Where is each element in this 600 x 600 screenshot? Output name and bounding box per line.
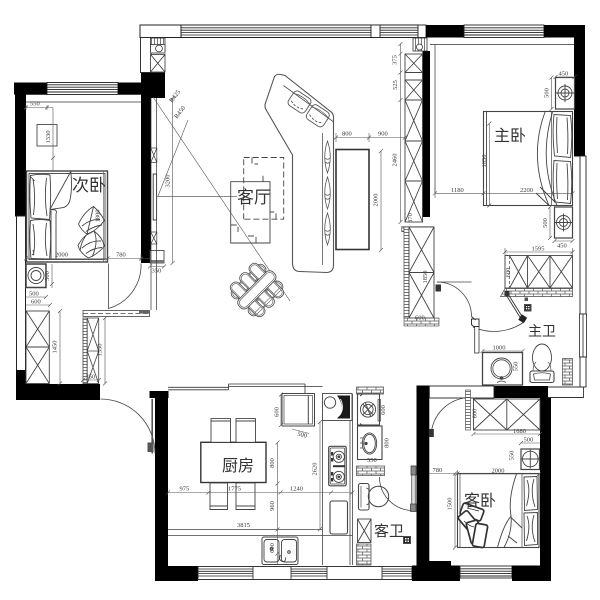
svg-text:780: 780 [433,467,443,474]
svg-text:客厅: 客厅 [237,188,271,207]
svg-text:3200: 3200 [165,175,172,188]
svg-text:厨房: 厨房 [222,457,254,475]
svg-text:2000: 2000 [373,194,380,207]
svg-text:600: 600 [31,299,41,306]
svg-text:960: 960 [269,501,276,511]
svg-text:550: 550 [513,362,520,372]
svg-text:450: 450 [559,71,569,78]
svg-text:500: 500 [542,218,549,228]
svg-text:1850: 1850 [422,271,429,284]
svg-text:500: 500 [44,271,51,281]
svg-text:1180: 1180 [451,187,464,194]
svg-text:370: 370 [407,213,414,223]
svg-text:1350: 1350 [97,344,104,357]
svg-text:600: 600 [269,543,276,553]
svg-text:800: 800 [384,438,391,448]
svg-text:3815: 3815 [237,522,250,529]
svg-text:1775: 1775 [228,486,241,493]
svg-text:1680: 1680 [513,428,526,435]
svg-text:1800: 1800 [95,210,102,223]
svg-text:375: 375 [392,55,399,65]
svg-text:1595: 1595 [532,246,545,253]
svg-text:450: 450 [557,243,567,250]
svg-text:350: 350 [86,374,96,381]
svg-text:500: 500 [29,291,39,298]
svg-text:客卫: 客卫 [374,523,404,540]
svg-text:525: 525 [392,80,399,90]
svg-text:600: 600 [415,315,425,322]
svg-text:1500: 1500 [447,498,454,511]
svg-text:500: 500 [544,88,551,98]
svg-text:800: 800 [269,458,276,468]
svg-text:主卧: 主卧 [494,127,526,145]
svg-text:600: 600 [472,409,479,419]
svg-text:350: 350 [152,268,162,275]
svg-text:2620: 2620 [312,463,319,476]
svg-text:550: 550 [367,457,377,464]
svg-text:500: 500 [524,437,534,444]
svg-text:900: 900 [378,131,388,138]
svg-text:主卫: 主卫 [528,324,556,340]
svg-text:1000: 1000 [493,345,506,352]
svg-text:550: 550 [30,101,40,108]
svg-text:780: 780 [116,252,126,259]
svg-text:1240: 1240 [290,486,303,493]
svg-text:600: 600 [380,405,387,415]
svg-text:次卧: 次卧 [72,176,106,195]
svg-text:2000: 2000 [492,468,505,475]
svg-text:550: 550 [509,451,516,461]
svg-text:1850: 1850 [481,155,488,168]
svg-text:2460: 2460 [392,154,399,167]
svg-text:800: 800 [342,131,352,138]
svg-text:2200: 2200 [520,187,533,194]
svg-text:2000: 2000 [55,252,68,259]
svg-text:600: 600 [274,407,281,417]
svg-text:1450: 1450 [52,341,59,354]
svg-text:975: 975 [180,486,190,493]
svg-text:600: 600 [505,268,512,278]
svg-text:客卧: 客卧 [464,492,496,510]
svg-text:1330: 1330 [45,131,52,144]
